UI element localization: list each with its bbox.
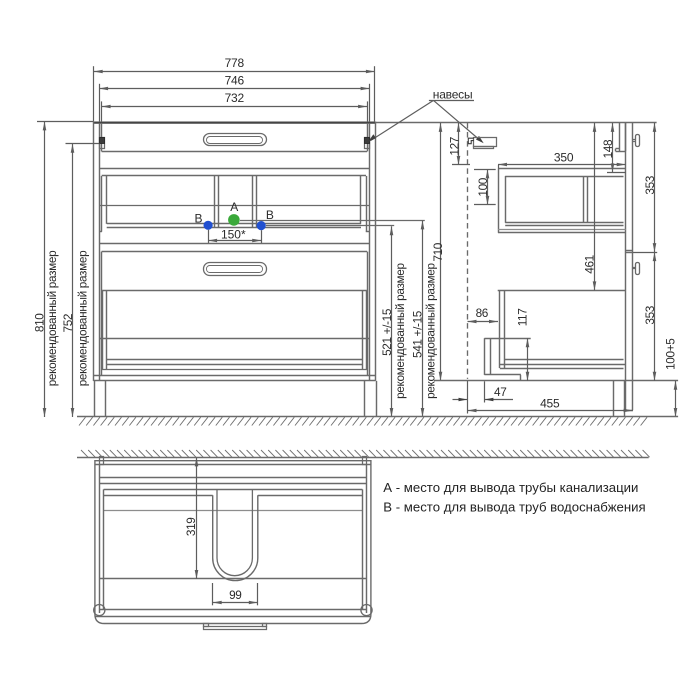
svg-text:455: 455 xyxy=(540,396,560,410)
svg-text:B: B xyxy=(266,208,274,222)
svg-text:150*: 150* xyxy=(221,227,246,241)
svg-text:рекомендованный размер: рекомендованный размер xyxy=(45,250,59,386)
svg-text:В - место для вывода труб водо: В - место для вывода труб водоснабжения xyxy=(383,500,645,515)
svg-text:752: 752 xyxy=(61,314,75,333)
svg-text:732: 732 xyxy=(225,91,245,105)
svg-text:778: 778 xyxy=(225,56,245,70)
svg-text:117: 117 xyxy=(516,309,530,327)
svg-text:рекомендованный размер: рекомендованный размер xyxy=(424,263,438,399)
svg-text:746: 746 xyxy=(225,74,245,88)
svg-text:86: 86 xyxy=(476,306,489,320)
svg-text:541 +/-15: 541 +/-15 xyxy=(411,310,425,358)
svg-text:47: 47 xyxy=(494,385,506,399)
svg-text:127: 127 xyxy=(447,137,461,156)
svg-text:навесы: навесы xyxy=(433,88,473,102)
svg-text:рекомендованный размер: рекомендованный размер xyxy=(75,250,89,386)
svg-text:99: 99 xyxy=(229,588,241,602)
svg-text:А - место для вывода трубы кан: А - место для вывода трубы канализации xyxy=(383,480,638,495)
svg-text:353: 353 xyxy=(643,305,657,324)
svg-text:461: 461 xyxy=(583,255,597,274)
svg-text:148: 148 xyxy=(601,139,615,158)
svg-text:100+5: 100+5 xyxy=(664,338,678,370)
svg-text:353: 353 xyxy=(643,175,657,194)
svg-text:рекомендованный размер: рекомендованный размер xyxy=(393,263,407,399)
svg-text:710: 710 xyxy=(431,242,445,261)
svg-text:350: 350 xyxy=(554,151,574,165)
svg-text:521 +/-15: 521 +/-15 xyxy=(380,308,394,356)
svg-text:319: 319 xyxy=(184,517,198,536)
svg-text:A: A xyxy=(230,200,238,214)
svg-text:100: 100 xyxy=(476,177,490,196)
svg-text:B: B xyxy=(194,211,202,225)
